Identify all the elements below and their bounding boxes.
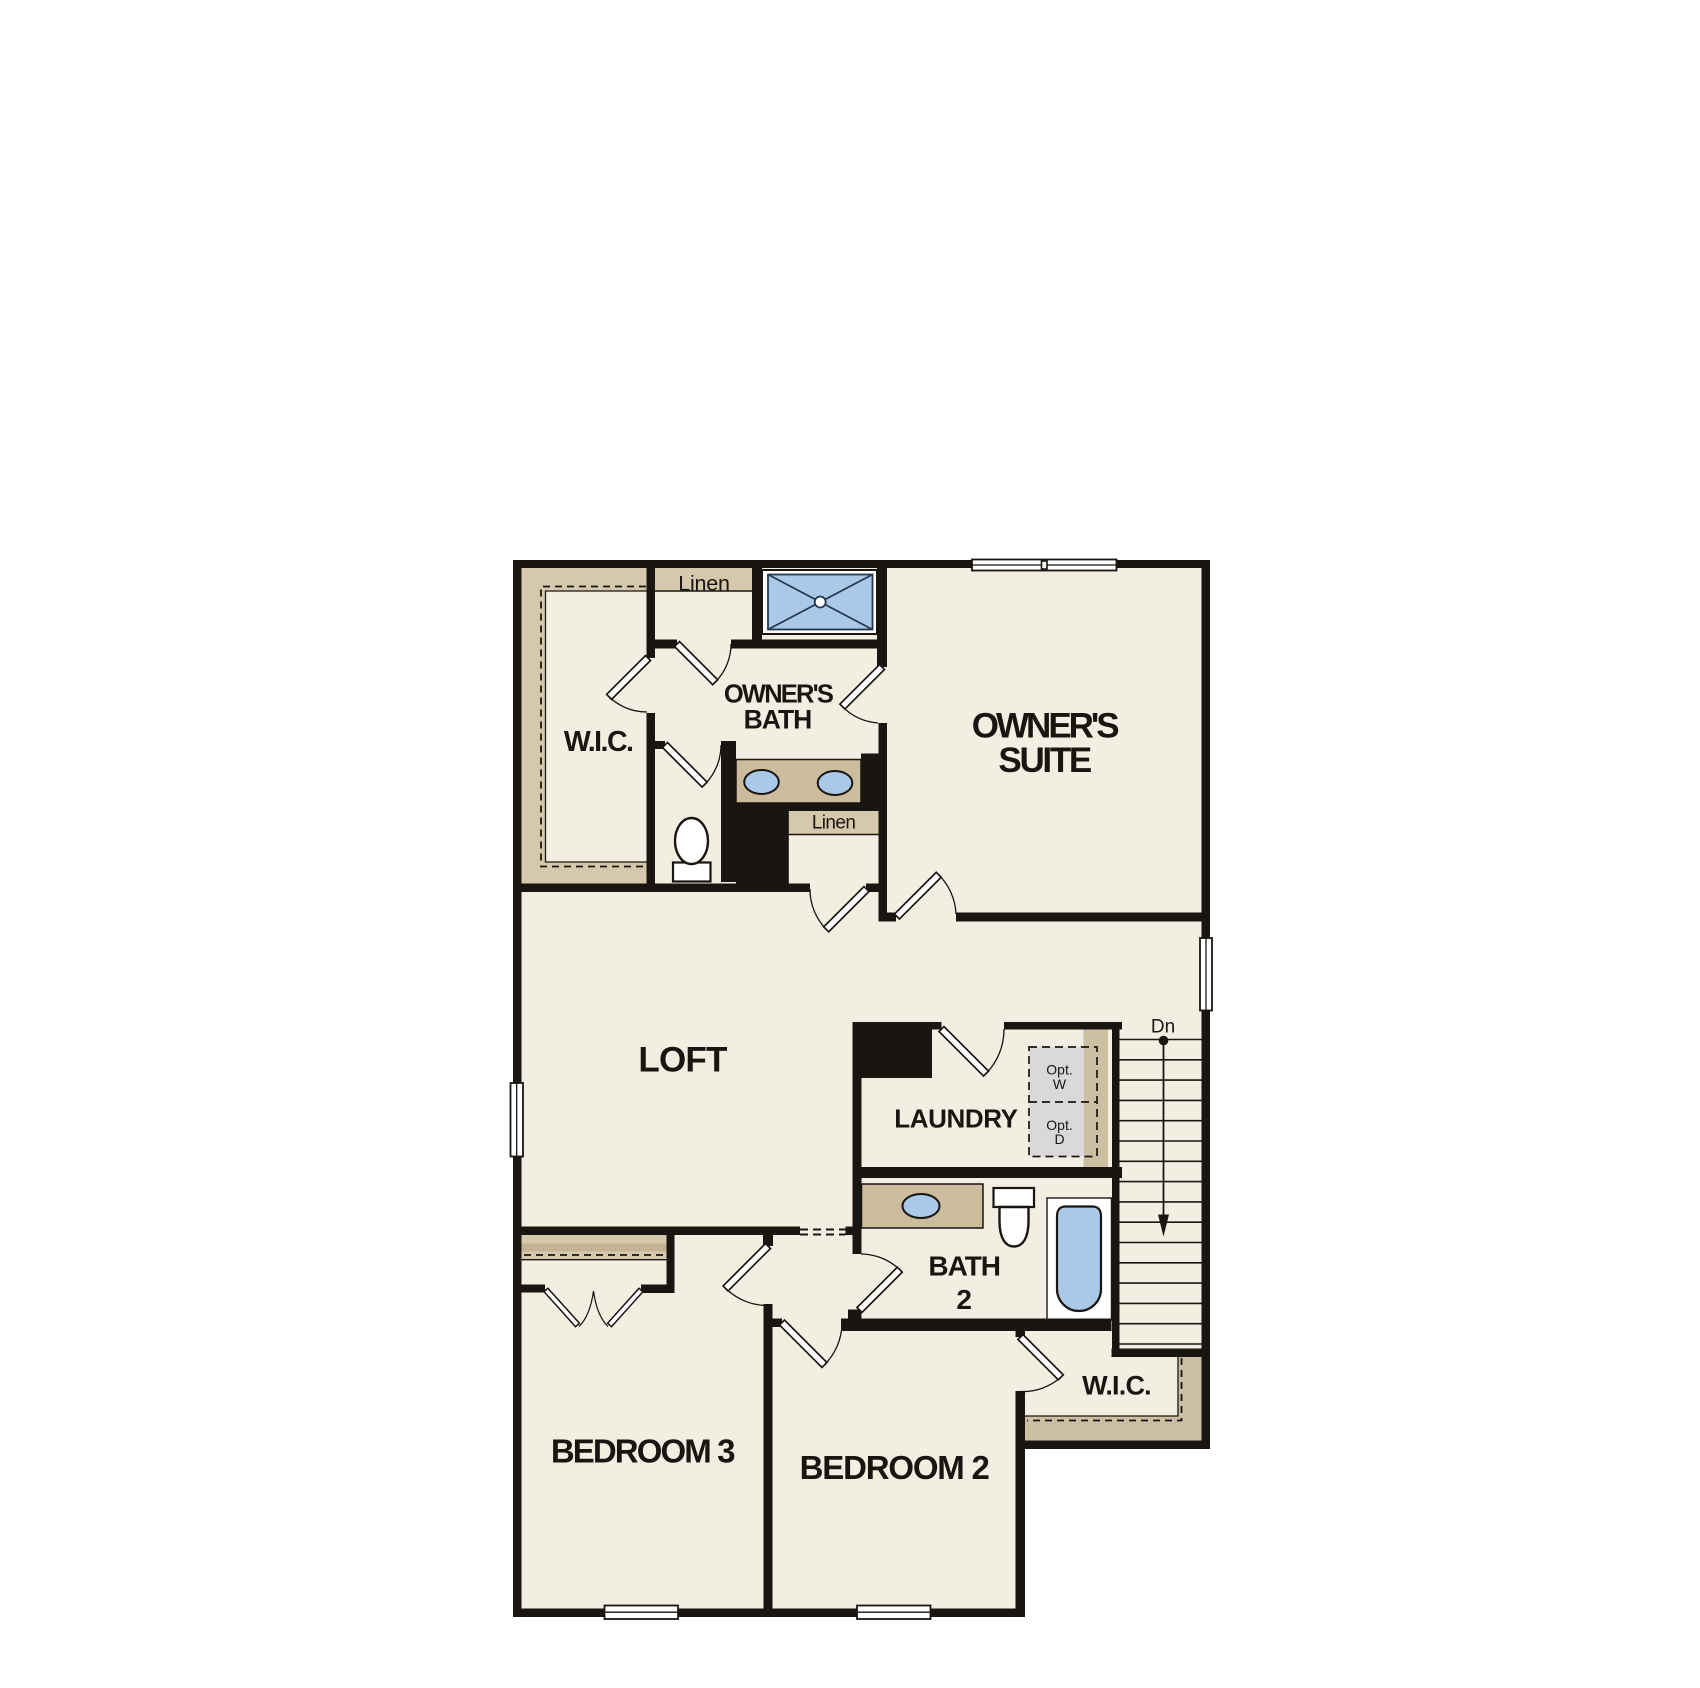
svg-text:LAUNDRY: LAUNDRY	[894, 1104, 1017, 1134]
svg-text:BEDROOM 3: BEDROOM 3	[551, 1433, 735, 1470]
svg-text:BATH: BATH	[744, 705, 812, 735]
svg-text:SUITE: SUITE	[998, 741, 1091, 780]
svg-text:Opt.: Opt.	[1046, 1061, 1072, 1077]
svg-text:LOFT: LOFT	[638, 1041, 727, 1080]
svg-text:W: W	[1053, 1076, 1067, 1092]
svg-text:Linen: Linen	[678, 572, 730, 596]
svg-text:D: D	[1054, 1131, 1064, 1147]
svg-text:W.I.C.: W.I.C.	[564, 726, 633, 758]
svg-text:BEDROOM 2: BEDROOM 2	[800, 1449, 990, 1486]
svg-text:BATH: BATH	[928, 1251, 1000, 1282]
svg-text:2: 2	[956, 1284, 972, 1315]
svg-text:Linen: Linen	[812, 813, 856, 834]
svg-text:Dn: Dn	[1151, 1017, 1175, 1038]
svg-text:W.I.C.: W.I.C.	[1082, 1371, 1151, 1401]
